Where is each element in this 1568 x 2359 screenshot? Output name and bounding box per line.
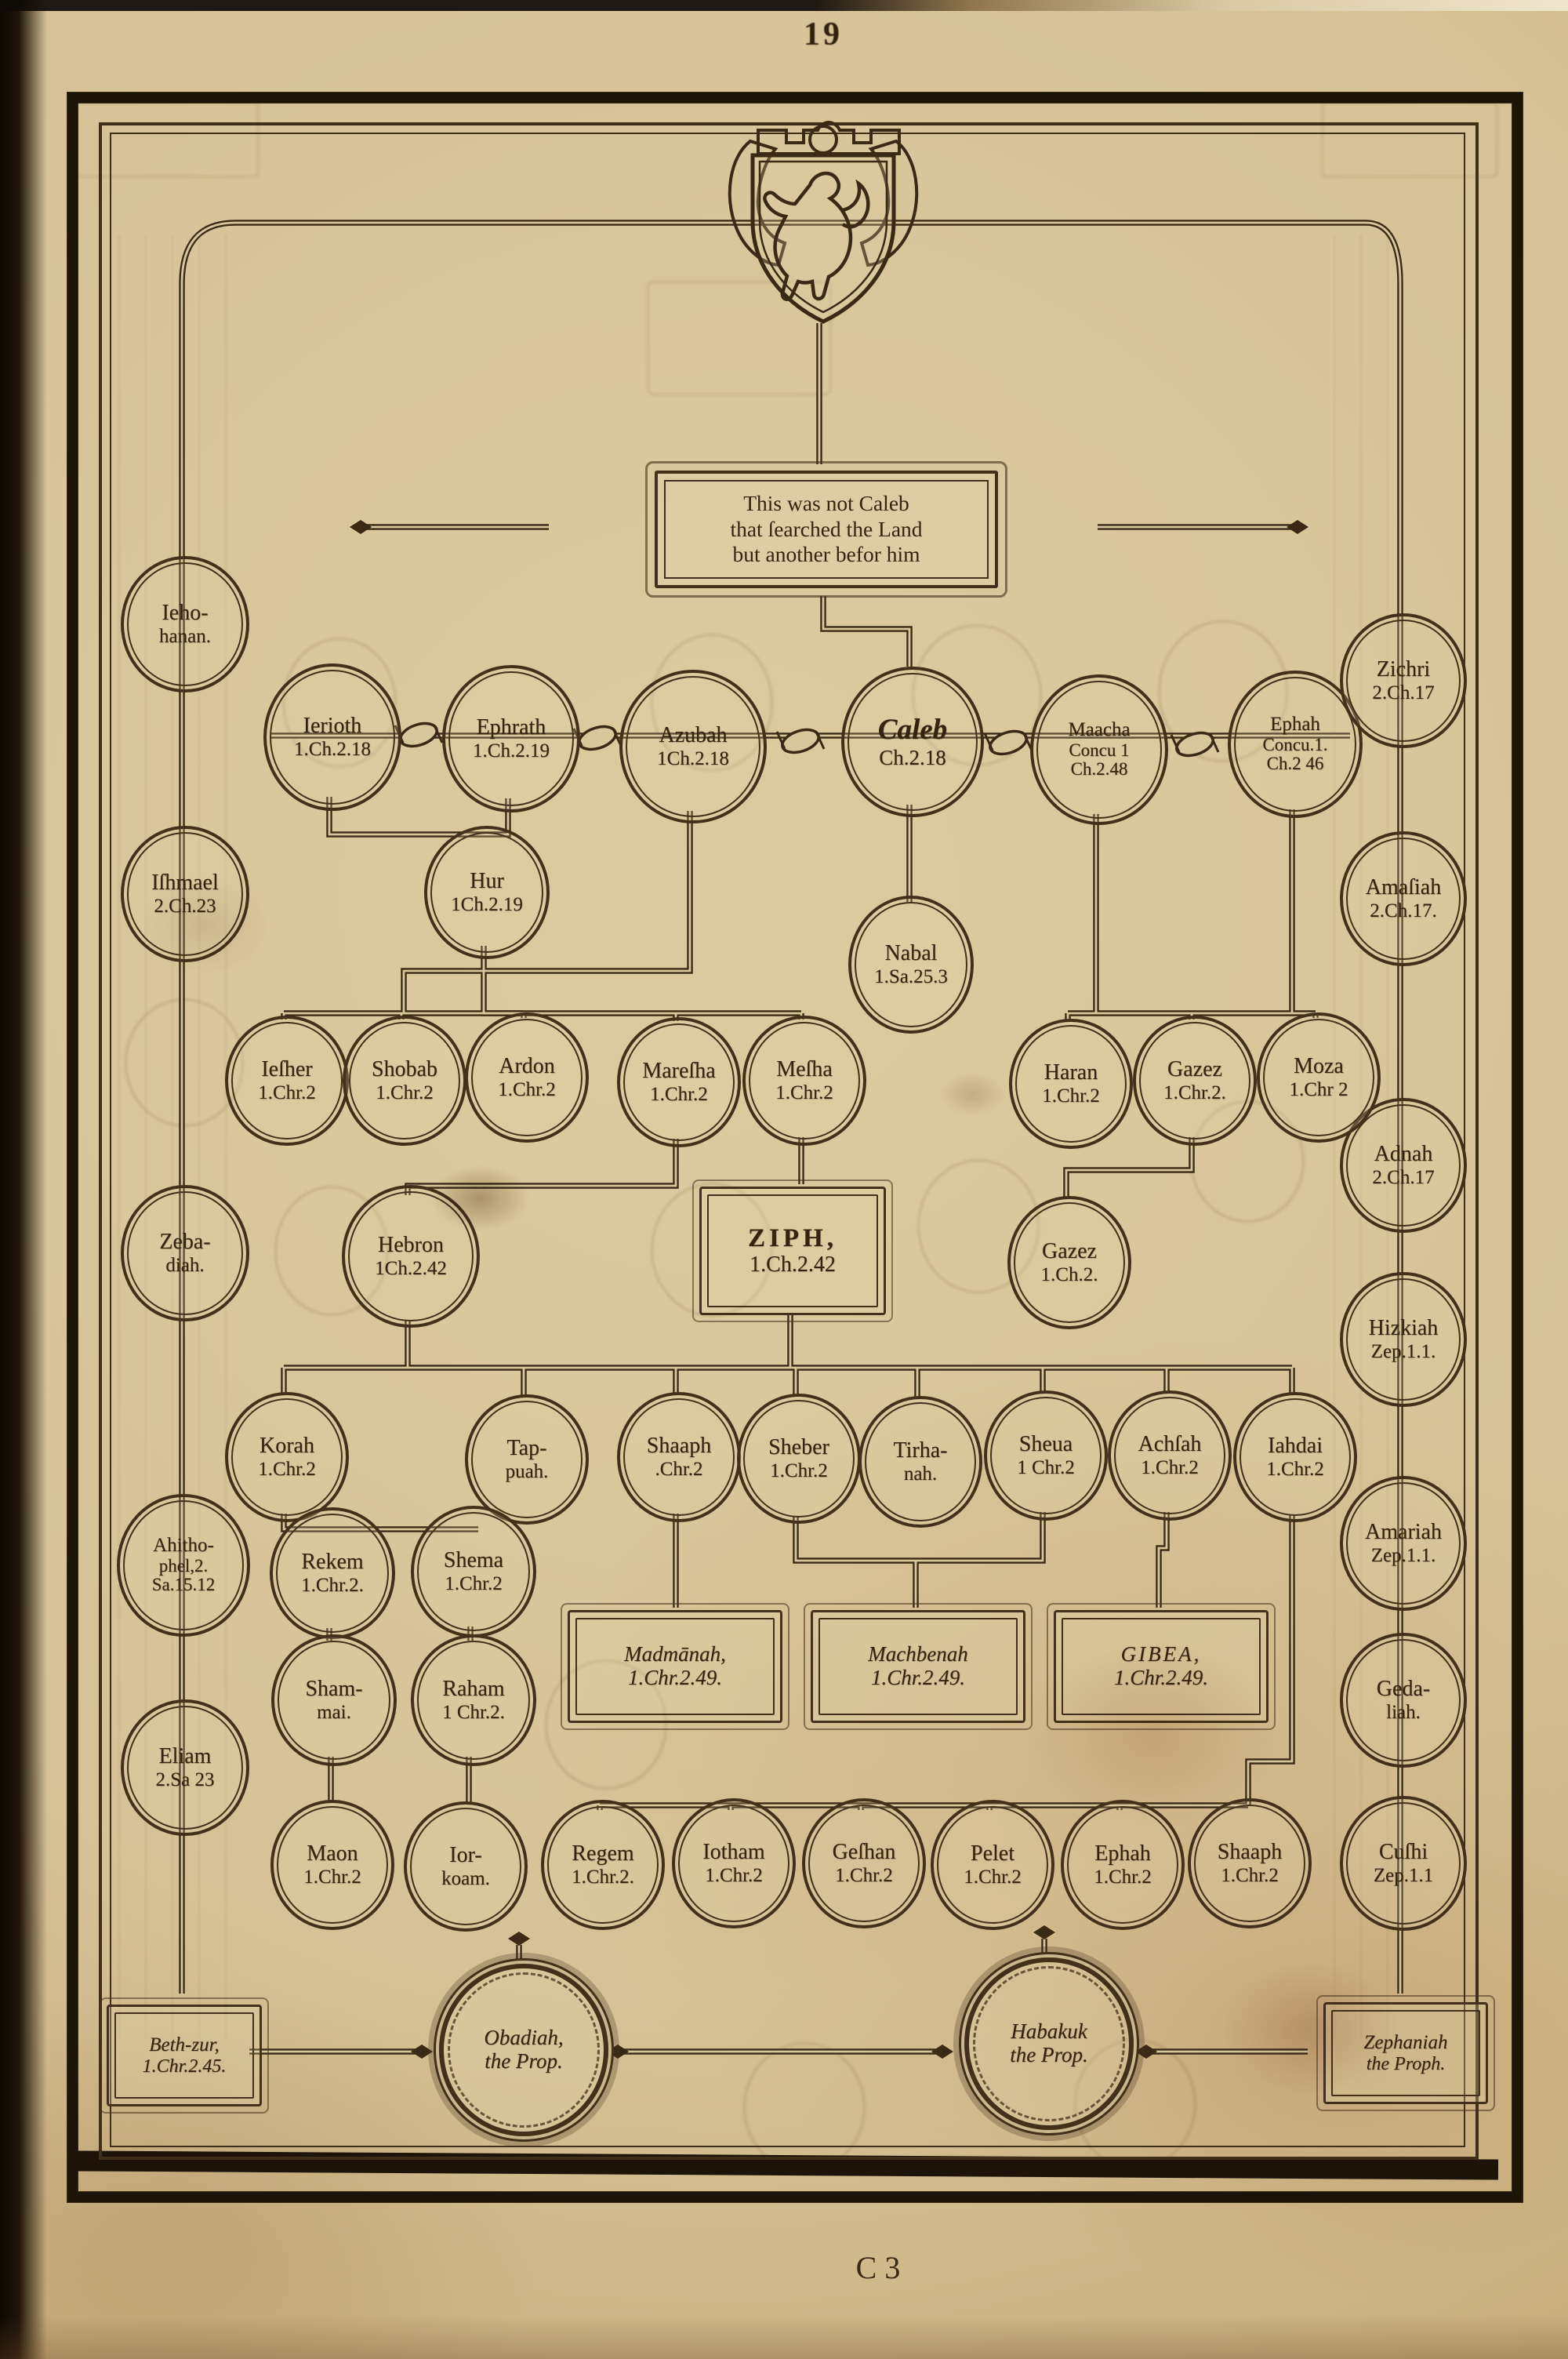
node-label: Eliam2.Sa 23 xyxy=(156,1745,215,1790)
book-gutter-shadow-dark xyxy=(0,0,47,2359)
node-label: Zichri2.Ch.17 xyxy=(1372,658,1434,703)
node-label: Pelet1.Chr.2 xyxy=(964,1842,1022,1888)
node-label: Obadiah,the Prop. xyxy=(484,2026,563,2073)
node-label: Sham-mai. xyxy=(305,1677,362,1723)
node-amasiah: Amaſiah2.Ch.17. xyxy=(1340,831,1467,966)
node-label: ZIPH,1.Ch.2.42 xyxy=(748,1224,837,1277)
node-gazez-1: Gazez1.Chr.2. xyxy=(1133,1016,1257,1146)
node-label: CalebCh.2.18 xyxy=(878,714,947,769)
gathering-signature: C 3 xyxy=(815,2249,941,2286)
node-raham: Raham1 Chr.2. xyxy=(411,1634,536,1766)
page-top-edge xyxy=(0,0,1568,11)
node-label: Iſhmael2.Ch.23 xyxy=(151,871,219,917)
node-beth-zur: Beth-zur,1.Chr.2.45. xyxy=(107,2005,262,2106)
node-achsah: Achſah1.Chr.2 xyxy=(1108,1390,1232,1521)
spear-tip-icon xyxy=(411,2045,433,2059)
node-sheber: Sheber1.Chr.2 xyxy=(737,1394,861,1524)
node-label: Achſah1.Chr.2 xyxy=(1138,1433,1202,1478)
node-hur: Hur1Ch.2.19 xyxy=(424,826,550,959)
node-gedaliah: Geda-liah. xyxy=(1340,1633,1467,1768)
spear-tip-icon xyxy=(350,520,372,534)
node-shaaph-1: Shaaph.Chr.2 xyxy=(617,1392,741,1522)
node-label: Hur1Ch.2.19 xyxy=(451,870,523,915)
coat-of-arms xyxy=(710,110,937,353)
node-tappuah: Tap-puah. xyxy=(465,1394,589,1525)
node-ardon: Ardon1.Chr.2 xyxy=(465,1012,589,1143)
node-pelet: Pelet1.Chr.2 xyxy=(931,1800,1054,1930)
clasped-hands-icon xyxy=(395,719,442,751)
node-label: Shobab1.Chr.2 xyxy=(372,1058,437,1103)
node-label: AmariahZep.1.1. xyxy=(1365,1521,1442,1566)
node-iesher: Ieſher1.Chr.2 xyxy=(225,1016,349,1146)
node-amariah: AmariahZep.1.1. xyxy=(1340,1476,1467,1611)
node-sheua: Sheua1 Chr.2 xyxy=(984,1390,1108,1521)
node-label: Tirha-nah. xyxy=(894,1439,948,1485)
node-iehohanan: Ieho-hanan. xyxy=(121,556,249,692)
node-hizkiah: HizkiahZep.1.1. xyxy=(1340,1272,1467,1407)
node-label: Korah1.Chr.2 xyxy=(258,1434,316,1480)
node-haran: Haran1.Chr.2 xyxy=(1009,1019,1133,1149)
node-label: Tap-puah. xyxy=(506,1437,549,1482)
node-label: Geſhan1.Chr.2 xyxy=(833,1841,896,1886)
node-korah: Korah1.Chr.2 xyxy=(225,1392,349,1522)
node-nabal: Nabal1.Sa.25.3 xyxy=(848,896,974,1034)
node-label: Ieſher1.Chr.2 xyxy=(258,1058,316,1103)
caleb-note-line: This was not Caleb xyxy=(743,491,909,516)
node-label: Moza1.Chr 2 xyxy=(1290,1055,1348,1100)
node-label: GIBEA,1.Chr.2.49. xyxy=(1114,1643,1208,1689)
spear-tip-icon xyxy=(607,2045,629,2059)
spear-tip-icon xyxy=(1135,2045,1157,2059)
node-label: Adnah2.Ch.17 xyxy=(1372,1143,1434,1188)
node-label: EphahConcu.1.Ch.2 46 xyxy=(1262,714,1327,773)
node-geshan: Geſhan1.Chr.2 xyxy=(802,1798,926,1928)
page-bottom-edge xyxy=(0,2315,1568,2359)
node-label: Ior-koam. xyxy=(441,1844,490,1889)
node-cushi: CuſhiZep.1.1 xyxy=(1340,1796,1467,1931)
node-shobab: Shobab1.Chr.2 xyxy=(343,1016,466,1146)
spear-tip-icon xyxy=(508,1932,530,1946)
node-label: Maon1.Chr.2 xyxy=(303,1842,361,1888)
node-label: Regem1.Chr.2. xyxy=(572,1842,634,1888)
caleb-note-line: but another befor him xyxy=(732,542,920,567)
spear-tip-icon xyxy=(931,2045,953,2059)
node-label: HizkiahZep.1.1. xyxy=(1369,1317,1439,1362)
node-madmannah: Madmānah,1.Chr.2.49. xyxy=(568,1610,782,1723)
node-tirhanah: Tirha-nah. xyxy=(858,1396,982,1528)
node-label: MaachaConcu 1Ch.2.48 xyxy=(1068,720,1130,779)
node-label: Ephah1.Chr.2 xyxy=(1094,1842,1152,1888)
node-label: Zephaniahthe Proph. xyxy=(1364,2032,1448,2074)
node-zichri: Zichri2.Ch.17 xyxy=(1340,613,1467,748)
spear-tip-icon xyxy=(1287,520,1308,534)
node-iorkoam: Ior-koam. xyxy=(404,1801,528,1932)
node-regem: Regem1.Chr.2. xyxy=(541,1800,665,1930)
clasped-hands-icon xyxy=(777,725,824,757)
node-ephrath: Ephrath1.Ch.2.19 xyxy=(442,665,580,812)
node-eliam: Eliam2.Sa 23 xyxy=(121,1699,249,1836)
node-shaaph-2: Shaaph1.Chr.2 xyxy=(1188,1798,1312,1928)
node-hebron: Hebron1Ch.2.42 xyxy=(342,1185,480,1328)
node-label: Amaſiah2.Ch.17. xyxy=(1366,876,1441,921)
node-maacha: MaachaConcu 1Ch.2.48 xyxy=(1030,674,1168,825)
node-label: Habakukthe Prop. xyxy=(1010,2020,1087,2066)
node-label: Nabal1.Sa.25.3 xyxy=(874,942,948,987)
node-label: Sheua1 Chr.2 xyxy=(1017,1433,1075,1478)
node-label: Gazez1.Chr.2. xyxy=(1163,1058,1226,1103)
node-iotham: Iotham1.Chr.2 xyxy=(672,1798,796,1928)
node-ahithophel: Ahitho-phel,2.Sa.15.12 xyxy=(117,1494,250,1637)
node-label: Zeba-diah. xyxy=(159,1230,210,1276)
node-label: Iahdai1.Chr.2 xyxy=(1266,1434,1324,1480)
node-label: Shaaph1.Chr.2 xyxy=(1218,1841,1282,1886)
node-obadiah: Obadiah,the Prop. xyxy=(439,1964,608,2136)
node-maresha: Mareſha1.Chr.2 xyxy=(617,1017,741,1147)
node-mesha: Meſha1.Chr.2 xyxy=(742,1016,866,1146)
node-shammai: Sham-mai. xyxy=(271,1634,397,1766)
node-label: Raham1 Chr.2. xyxy=(442,1677,505,1723)
node-moza: Moza1.Chr 2 xyxy=(1257,1012,1381,1143)
node-label: Geda-liah. xyxy=(1377,1677,1430,1723)
node-label: Ardon1.Chr.2 xyxy=(498,1055,556,1100)
node-label: Iotham1.Chr.2 xyxy=(702,1841,764,1886)
node-label: Rekem1.Chr.2. xyxy=(301,1550,364,1596)
clasped-hands-icon xyxy=(985,727,1032,758)
node-label: Madmānah,1.Chr.2.49. xyxy=(624,1643,726,1689)
node-ishmael: Iſhmael2.Ch.23 xyxy=(121,826,249,962)
node-label: Hebron1Ch.2.42 xyxy=(375,1234,447,1279)
node-zephaniah: Zephaniahthe Proph. xyxy=(1323,2002,1488,2104)
node-ephah-2: Ephah1.Chr.2 xyxy=(1061,1800,1185,1930)
node-label: Shema1.Chr.2 xyxy=(444,1549,503,1594)
node-label: Ahitho-phel,2.Sa.15.12 xyxy=(152,1536,216,1594)
node-label: Machbenah1.Chr.2.49. xyxy=(868,1643,967,1689)
crest-arch xyxy=(810,126,837,153)
node-habakuk: Habakukthe Prop. xyxy=(964,1957,1134,2130)
node-label: Mareſha1.Chr.2 xyxy=(642,1060,715,1105)
node-label: Sheber1.Chr.2 xyxy=(768,1436,829,1481)
node-shema: Shema1.Chr.2 xyxy=(411,1506,536,1637)
node-gibea: GIBEA,1.Chr.2.49. xyxy=(1054,1610,1269,1723)
caleb-note-line: that ſearched the Land xyxy=(730,517,922,542)
node-label: Azubah1Ch.2.18 xyxy=(657,724,729,769)
node-label: Shaaph.Chr.2 xyxy=(647,1434,711,1480)
node-machbenah: Machbenah1.Chr.2.49. xyxy=(811,1610,1025,1723)
node-label: Gazez1.Ch.2. xyxy=(1041,1240,1098,1285)
node-ierioth: Ierioth1.Ch.2.18 xyxy=(263,663,401,811)
node-label: Ieho-hanan. xyxy=(159,602,211,647)
node-label: CuſhiZep.1.1 xyxy=(1374,1841,1433,1886)
page-number: 19 xyxy=(737,16,909,53)
node-azubah: Azubah1Ch.2.18 xyxy=(619,670,767,823)
node-caleb: CalebCh.2.18 xyxy=(841,667,984,817)
spear-tip-icon xyxy=(1033,1925,1055,1939)
node-rekem: Rekem1.Chr.2. xyxy=(270,1507,395,1639)
node-label: Ephrath1.Ch.2.19 xyxy=(473,716,550,761)
node-iahdai: Iahdai1.Chr.2 xyxy=(1233,1392,1357,1522)
caleb-note-cartouche: This was not Caleb that ſearched the Lan… xyxy=(655,471,998,588)
clasped-hands-icon xyxy=(574,722,621,754)
node-label: Meſha1.Chr.2 xyxy=(775,1058,833,1103)
node-label: Haran1.Chr.2 xyxy=(1042,1061,1100,1107)
node-ziph: ZIPH,1.Ch.2.42 xyxy=(699,1187,886,1315)
node-gazez-2: Gazez1.Ch.2. xyxy=(1007,1196,1131,1329)
node-maon: Maon1.Chr.2 xyxy=(270,1800,394,1930)
node-label: Beth-zur,1.Chr.2.45. xyxy=(143,2034,227,2077)
node-zebadiah: Zeba-diah. xyxy=(121,1185,249,1321)
node-label: Ierioth1.Ch.2.18 xyxy=(294,714,371,760)
